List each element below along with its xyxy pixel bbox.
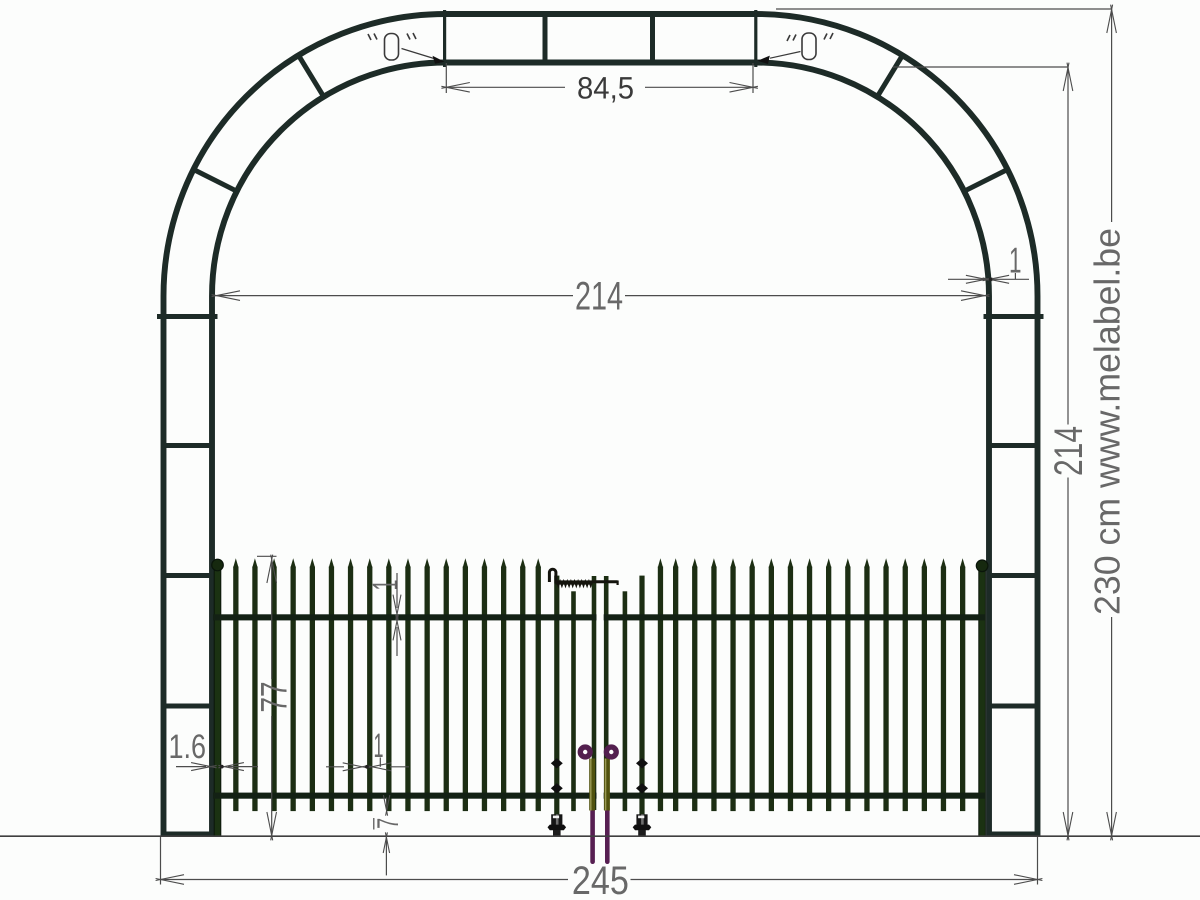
svg-text:1: 1	[374, 727, 384, 765]
svg-text:230 cm www.melabel.be: 230 cm www.melabel.be	[1087, 228, 1128, 615]
svg-text:214: 214	[1047, 426, 1091, 476]
svg-text:1.6: 1.6	[169, 728, 207, 766]
svg-text:84,5: 84,5	[577, 71, 634, 106]
svg-text:77: 77	[253, 682, 294, 713]
svg-text:1: 1	[365, 580, 406, 591]
svg-text:245: 245	[572, 859, 629, 900]
svg-text:214: 214	[575, 275, 623, 319]
svg-text:7: 7	[372, 818, 405, 829]
